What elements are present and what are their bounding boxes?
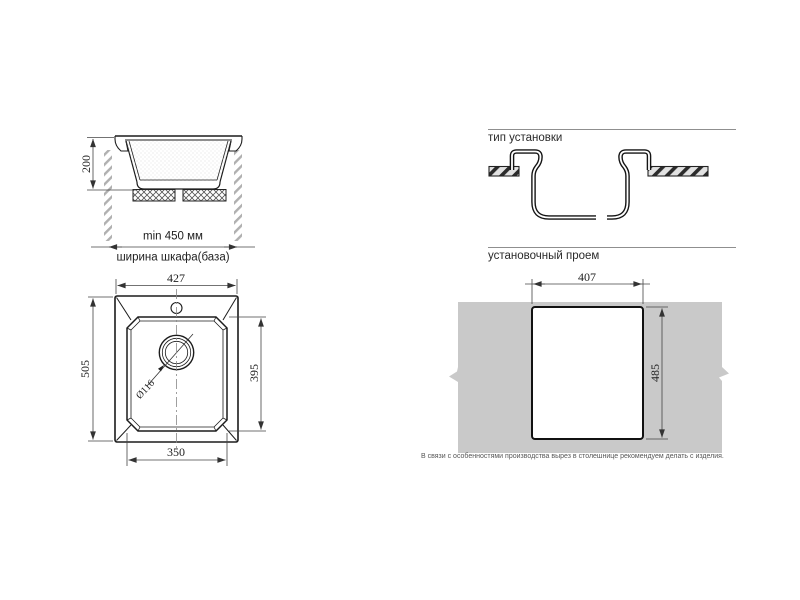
dim-label-395: 395: [248, 364, 260, 382]
bowl-outer-rim: [127, 317, 227, 431]
top-view: [88, 279, 266, 466]
cabinet-min-width-label: min 450 мм: [143, 231, 203, 243]
bowl-texture: [125, 141, 232, 181]
dim-label-407: 407: [578, 271, 596, 283]
sink-installation-drawing: 200 min 450 мм ширина шкафа(база) 427 50…: [0, 0, 800, 600]
sink-foot-pad-left: [133, 190, 175, 202]
sink-foot-pad-right: [183, 190, 226, 202]
cutout-rect: [532, 307, 643, 439]
installation-type-title: тип установки: [488, 133, 562, 145]
installation-opening-drawing: [449, 279, 729, 453]
dim-label-505: 505: [79, 360, 91, 378]
bowl-corner-bevels: [127, 317, 227, 431]
sink-profile: [512, 152, 649, 218]
dim-label-485: 485: [649, 364, 661, 382]
countertop-left: [489, 167, 519, 177]
installation-opening-rule: [488, 247, 736, 248]
dim-label-200: 200: [80, 155, 92, 173]
drain-leader: [147, 334, 193, 386]
dim-label-350: 350: [167, 446, 185, 458]
dim-label-427: 427: [167, 272, 185, 284]
footer-note: В связи с особенностями производства выр…: [421, 453, 724, 460]
bowl-inner-rim: [131, 321, 223, 427]
technical-drawing-svg: [0, 0, 800, 600]
cabinet-wall-left: [104, 150, 112, 241]
installation-type-rule: [488, 129, 736, 130]
cabinet-wall-right: [234, 150, 242, 241]
installation-opening-title: установочный проем: [488, 251, 599, 263]
countertop-right: [648, 167, 708, 177]
cabinet-width-label: ширина шкафа(база): [116, 252, 229, 264]
installation-type-drawing: [489, 152, 708, 218]
